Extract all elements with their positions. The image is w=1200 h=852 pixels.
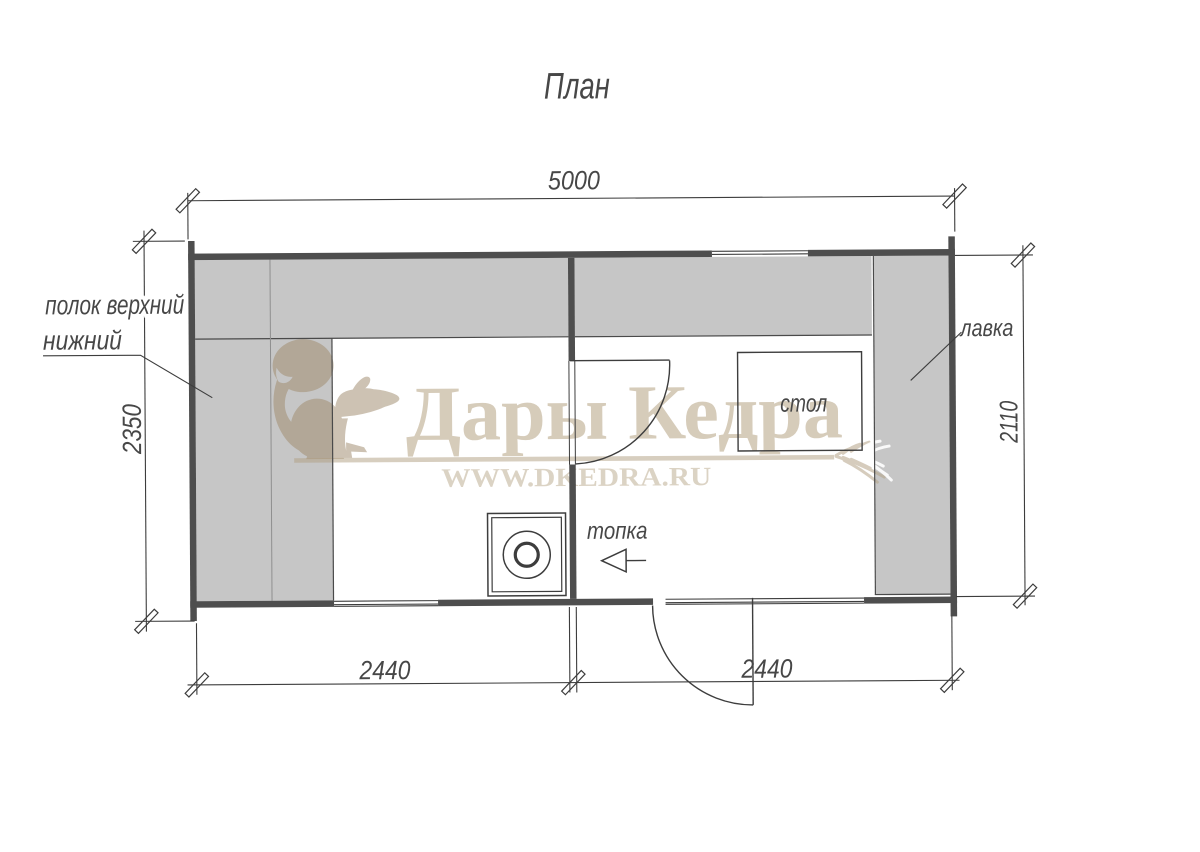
- svg-text:2440: 2440: [359, 655, 411, 685]
- svg-text:топка: топка: [587, 518, 648, 545]
- svg-text:5000: 5000: [548, 165, 600, 195]
- svg-text:2440: 2440: [741, 653, 793, 683]
- svg-text:Дары Кедра: Дары Кедра: [406, 367, 844, 457]
- svg-text:лавка: лавка: [959, 315, 1014, 342]
- svg-text:2110: 2110: [995, 401, 1023, 444]
- svg-text:полок верхний: полок верхний: [45, 290, 184, 321]
- svg-text:План: План: [544, 65, 610, 106]
- svg-text:WWW.DKEDRA.RU: WWW.DKEDRA.RU: [441, 461, 711, 493]
- svg-text:2350: 2350: [117, 404, 147, 455]
- svg-text:стол: стол: [780, 389, 827, 417]
- svg-text:нижний: нижний: [43, 325, 122, 355]
